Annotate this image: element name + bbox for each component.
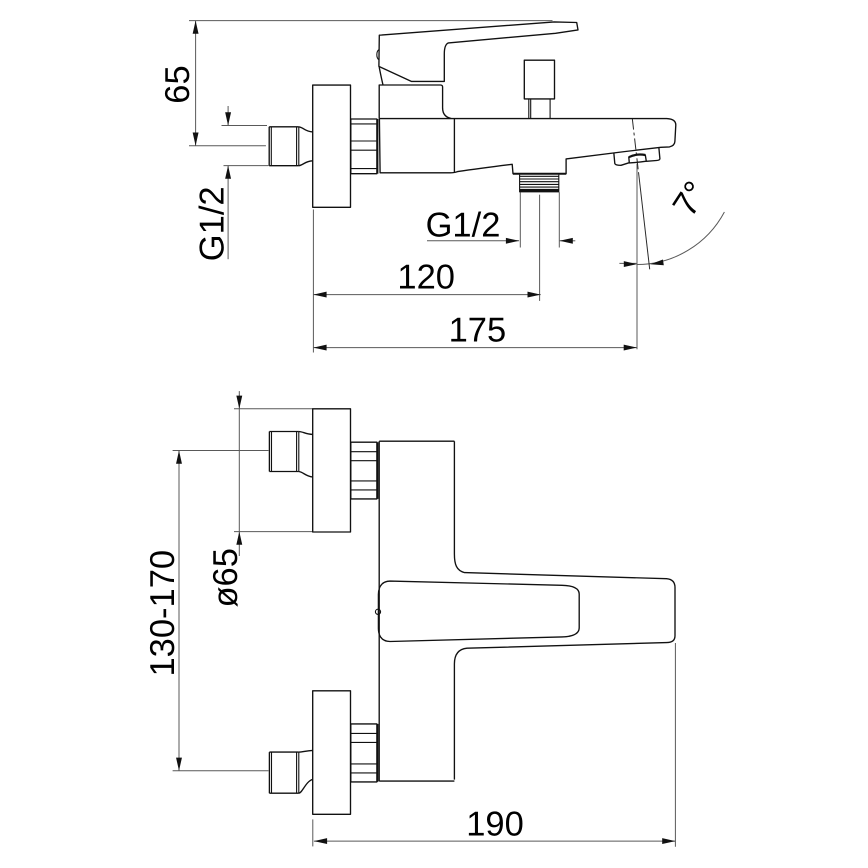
svg-text:G1/2: G1/2 bbox=[194, 186, 232, 261]
svg-text:7°: 7° bbox=[666, 175, 716, 223]
svg-text:130-170: 130-170 bbox=[144, 550, 182, 677]
svg-text:190: 190 bbox=[466, 806, 524, 844]
svg-text:G1/2: G1/2 bbox=[426, 206, 501, 244]
svg-text:120: 120 bbox=[397, 258, 455, 296]
svg-text:ø65: ø65 bbox=[207, 548, 245, 607]
svg-text:175: 175 bbox=[449, 312, 507, 350]
svg-text:65: 65 bbox=[159, 65, 197, 103]
